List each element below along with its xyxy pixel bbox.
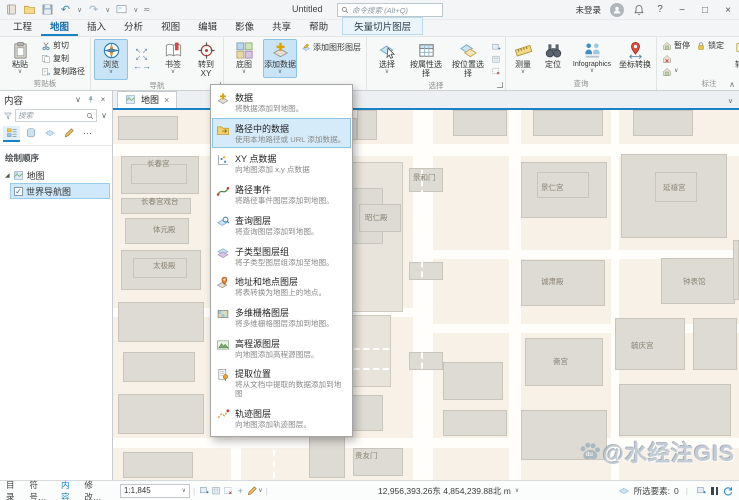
open-project-icon[interactable]	[23, 3, 36, 16]
panel-tab-strip: 目录符号…内容修改…	[0, 479, 112, 500]
undo-chevron-icon[interactable]: ∨	[77, 6, 82, 14]
add-graphics-layer-button[interactable]: 添加图形图层	[299, 41, 363, 53]
map-building	[693, 318, 737, 370]
menu-item[interactable]: 数据 将数据添加到地图。	[212, 87, 351, 118]
map-place-label: 长春宫	[147, 158, 170, 169]
menu-item-icon	[216, 123, 230, 137]
group-label-navigate: 导航	[91, 80, 223, 91]
menu-item-label: 提取位置	[235, 367, 347, 380]
lock-labeling-button[interactable]: 锁定	[694, 40, 726, 52]
group-label-clipboard: 剪贴板	[0, 78, 90, 90]
menu-item[interactable]: 提取位置 将从文档中提取的数据添加到地图	[212, 363, 351, 402]
pan-diagonal-icons[interactable]: ↖↗	[135, 48, 149, 55]
tree-node-map[interactable]: ◢ 地图	[0, 168, 112, 183]
map-place-label: 体元殿	[153, 224, 176, 235]
copy-path-button[interactable]: 复制路径	[39, 66, 87, 78]
map-building	[123, 452, 193, 478]
list-by-selection-tool[interactable]	[41, 126, 58, 142]
map-place-label: 诚肃殿	[541, 276, 564, 287]
clear-selection-icon[interactable]	[490, 66, 502, 77]
search-options-chevron-icon[interactable]: ∨	[99, 111, 109, 121]
paste-button[interactable]: 粘贴∨	[3, 39, 37, 78]
locate-icon	[544, 41, 563, 60]
pause-drawing-icon[interactable]	[711, 487, 718, 495]
copy-button[interactable]: 复制	[39, 53, 87, 65]
explore-button[interactable]: 浏览∨	[94, 39, 128, 80]
menu-item[interactable]: 地址和地点图层 将表转换为地图上的地点。	[212, 271, 351, 302]
menu-item-description: 向地图添加 x,y 点数据	[235, 166, 310, 175]
coordinate-conversion-icon	[626, 41, 645, 60]
map-building	[118, 302, 204, 342]
map-dashed-path	[273, 450, 275, 478]
panel-tab[interactable]: 符号…	[26, 479, 57, 500]
new-bookmark-icon[interactable]	[198, 485, 210, 497]
paw-logo-icon: du	[577, 439, 603, 465]
map-building	[443, 362, 503, 400]
ribbon-tab[interactable]: 地图	[41, 17, 78, 36]
minimize-button[interactable]: −	[675, 5, 689, 16]
map-dashed-path	[421, 170, 423, 470]
menu-item[interactable]: 多维栅格图层 将多维栅格图层添加到地图。	[212, 302, 351, 333]
menu-item-label: 路径中的数据	[235, 122, 345, 135]
menu-item-label: 路径事件	[235, 183, 334, 196]
pencil-icon	[63, 127, 75, 139]
crosshair-icon[interactable]: +	[234, 485, 246, 497]
pause-house-icon	[662, 41, 672, 51]
menu-item-icon	[216, 307, 230, 321]
contents-panel: 内容 ∨ × 搜索 ∨ ⋯ 绘制顺序 ◢ 地图 ✓	[0, 91, 113, 480]
map-building	[733, 240, 739, 300]
basemap-button[interactable]: 底图∨	[227, 39, 261, 78]
map-place-label: 毓庆宫	[631, 340, 654, 351]
map-place-label: 太极殿	[153, 260, 176, 271]
map-road	[611, 110, 619, 480]
map-place-label: 贵友门	[355, 450, 378, 461]
map-building	[123, 352, 195, 382]
menu-item-label: 地址和地点图层	[235, 275, 326, 288]
labeling-more-button[interactable]: ∨	[660, 66, 726, 78]
ribbon-group-clipboard: 粘贴∨ 剪切 复制 复制路径 剪贴板	[0, 37, 91, 90]
select-button[interactable]: 选择∨	[370, 39, 404, 80]
map-building	[309, 430, 345, 478]
menu-item-icon	[216, 338, 230, 352]
contents-search-placeholder: 搜索	[18, 110, 33, 121]
menu-item-description: 将从文档中提取的数据添加到地图	[235, 381, 347, 398]
watermark-text: @水经注GIS	[603, 436, 735, 468]
menu-item-icon	[216, 92, 230, 106]
refresh-icon[interactable]	[722, 485, 734, 497]
house-icon	[662, 67, 672, 77]
cut-icon	[41, 41, 51, 51]
prev-next-extent-icons[interactable]: ←→	[133, 62, 151, 71]
menu-item-label: 轨迹图层	[235, 407, 311, 420]
panel-close-icon[interactable]: ×	[98, 95, 108, 105]
copy-icon	[41, 54, 51, 64]
ribbon: 粘贴∨ 剪切 复制 复制路径 剪贴板 浏览∨ ↖↗ ↙↘ ←→ 书签∨	[0, 37, 739, 91]
sign-in-status[interactable]: 未登录	[575, 4, 601, 16]
map-road	[413, 110, 433, 480]
house-x-icon	[662, 54, 672, 64]
panel-chevron-icon[interactable]: ∨	[73, 95, 83, 105]
copy-path-icon	[41, 67, 51, 77]
menu-item-label: XY 点数据	[235, 152, 310, 165]
view-sync-icon[interactable]	[695, 485, 707, 497]
menu-item-icon	[216, 215, 230, 229]
map-scale-value: 1:1,845	[124, 486, 151, 495]
filter-funnel-icon[interactable]	[3, 111, 13, 121]
map-road	[509, 110, 521, 480]
map-building	[533, 110, 603, 136]
expander-icon[interactable]: ◢	[5, 172, 10, 179]
redo-icon[interactable]: ↷	[87, 3, 100, 16]
convert-labels-icon	[734, 41, 739, 60]
map-tab-bar: 地图 × ∨	[113, 91, 739, 110]
data-source-icon	[25, 127, 37, 139]
map-place-label: 长春宫戏台	[141, 196, 179, 207]
select-tool-icon[interactable]	[222, 485, 234, 497]
infographics-button[interactable]: Infographics∨	[569, 39, 615, 78]
menu-item[interactable]: 查询图层 将查询图层添加到地图。	[212, 210, 351, 241]
list-by-editing-tool[interactable]	[60, 126, 77, 142]
menu-item-description: 使用本地路径或 URL 添加数据。	[235, 136, 345, 145]
ribbon-tab[interactable]: 视图	[152, 17, 189, 36]
menu-item-description: 向地图添加轨迹图层。	[235, 421, 311, 430]
layer-row-world-navigation[interactable]: ✓ 世界导航图	[10, 183, 110, 199]
search-icon	[341, 6, 349, 14]
select-by-location-button[interactable]: 按位置选择	[448, 39, 488, 80]
map-building	[619, 384, 731, 436]
selection-option-icon[interactable]	[490, 42, 502, 53]
menu-item-label: 查询图层	[235, 214, 319, 227]
ribbon-group-layer: 底图∨ 添加数据∨ 添加图形图层	[224, 37, 367, 90]
list-by-data-source-tool[interactable]	[22, 126, 39, 142]
menu-item-description: 将多维栅格图层添加到地图。	[235, 320, 334, 329]
search-icon	[86, 112, 94, 120]
menu-item-description: 将子类型图层组添加至地图。	[235, 259, 334, 268]
help-icon[interactable]: ?	[654, 4, 666, 16]
select-icon	[378, 41, 397, 60]
add-graphics-layer-icon	[301, 42, 311, 52]
cut-button[interactable]: 剪切	[39, 40, 87, 52]
menu-item-icon	[216, 246, 230, 260]
ribbon-tab[interactable]: 分析	[115, 17, 152, 36]
map-place-label: 昭仁殿	[365, 212, 388, 223]
menu-item-icon	[216, 153, 230, 167]
save-icon[interactable]	[41, 3, 54, 16]
map-building	[409, 352, 443, 370]
map-road	[413, 324, 739, 333]
menu-item-label: 多维栅格图层	[235, 306, 334, 319]
locate-button[interactable]: 定位	[539, 39, 567, 78]
ribbon-group-navigate: 浏览∨ ↖↗ ↙↘ ←→ 书签∨ 转到XY 导航	[91, 37, 224, 90]
contents-panel-title: 内容	[4, 93, 23, 107]
undo-icon[interactable]: ↶	[59, 3, 72, 16]
menu-item-icon	[216, 184, 230, 198]
list-by-drawing-order-tool[interactable]	[3, 126, 20, 142]
goto-xy-icon	[197, 41, 216, 60]
select-by-attributes-button[interactable]: 按属性选择	[406, 39, 446, 80]
bookmarks-button[interactable]: 书签∨	[156, 39, 190, 80]
coordinate-readout[interactable]: 12,956,393.26东 4,854,239.88北 m ∨	[378, 485, 519, 497]
measure-icon	[514, 41, 533, 60]
close-tab-icon[interactable]: ×	[164, 95, 169, 105]
labeling-option-button[interactable]	[660, 53, 726, 65]
map-canvas[interactable]: 长春宫长春宫戏台体元殿太极殿交泰殿乾清宫昭仁殿景和门景仁宫延禧宫诚肃殿钟表馆斋宫…	[113, 110, 739, 480]
edit-tool-icon[interactable]	[246, 485, 258, 497]
status-bar: 目录符号…内容修改… 1:1,845 ∨ | + ∨ | 12,956,393.…	[0, 480, 739, 500]
map-building	[443, 410, 507, 436]
map-node-icon	[13, 170, 24, 181]
map-scale-select[interactable]: 1:1,845 ∨	[120, 484, 190, 498]
menu-item-icon	[216, 368, 230, 382]
basemap-icon	[235, 41, 254, 60]
map-building	[118, 394, 204, 434]
selection-map-icon	[44, 127, 56, 139]
menu-item-label: 子类型图层组	[235, 245, 334, 258]
paste-icon	[11, 41, 30, 60]
selected-features-count: 0	[674, 486, 679, 496]
pause-labeling-button[interactable]: 暂停	[660, 40, 692, 52]
account-avatar[interactable]	[610, 3, 624, 17]
ribbon-tab[interactable]: 插入	[78, 17, 115, 36]
map-view-tab[interactable]: 地图 ×	[117, 91, 177, 108]
close-button[interactable]: ×	[721, 5, 735, 16]
coordinate-conversion-button[interactable]: 坐标转换	[617, 39, 653, 78]
menu-item-label: 数据	[235, 91, 303, 104]
collapse-ribbon-icon[interactable]: ∧	[729, 80, 735, 89]
ribbon-tab-row: 工程地图插入分析视图编辑影像共享帮助 矢量切片图层	[0, 20, 739, 37]
ribbon-group-inquiry: 测量∨ 定位 Infographics∨ 坐标转换 查询	[506, 37, 657, 90]
tools-chevron-icon[interactable]: ∨	[258, 487, 262, 494]
person-icon	[612, 5, 622, 15]
menu-item-label: 高程源图层	[235, 337, 319, 350]
measure-button[interactable]: 测量∨	[509, 39, 537, 78]
scale-chevron-icon: ∨	[182, 487, 186, 494]
selection-dialog-launcher[interactable]	[497, 82, 503, 88]
layer-name-label: 世界导航图	[26, 185, 71, 198]
menu-item[interactable]: 路径事件 将路径事件图层添加到地图。	[212, 179, 351, 210]
map-building	[118, 116, 178, 140]
pan-arrows-cluster[interactable]: ↖↗ ↙↘ ←→	[130, 39, 154, 80]
grid-icon[interactable]	[210, 485, 222, 497]
contents-search-input[interactable]: 搜索	[15, 109, 97, 122]
menu-item[interactable]: 高程源图层 向地图添加高程源图层。	[212, 333, 351, 364]
command-search-input[interactable]: 命令搜索 (Alt+Q)	[337, 3, 443, 17]
select-by-attributes-icon	[417, 41, 436, 60]
menu-item[interactable]: 路径中的数据 使用本地路径或 URL 添加数据。	[212, 118, 351, 149]
add-data-dropdown-menu: 数据 将数据添加到地图。 路径中的数据 使用本地路径或 URL 添加数据。 XY…	[210, 84, 353, 437]
tab-list-chevron-icon[interactable]: ∨	[728, 97, 733, 105]
selection-option-icon[interactable]	[490, 54, 502, 65]
infographics-icon	[583, 41, 602, 60]
menu-item[interactable]: 子类型图层组 将子类型图层组添加至地图。	[212, 241, 351, 272]
group-label-labeling: 标注	[657, 78, 739, 90]
map-place-label: 斋宫	[553, 356, 568, 367]
map-place-label: 钟表馆	[683, 276, 706, 287]
explore-icon	[102, 41, 121, 60]
map-frame-icon[interactable]	[115, 3, 128, 16]
drawing-order-header: 绘制顺序	[0, 146, 112, 168]
ribbon-tab[interactable]: 编辑	[189, 17, 226, 36]
map-place-label: 延禧宫	[663, 182, 686, 193]
notifications-bell-icon[interactable]	[633, 4, 645, 16]
layer-checkbox[interactable]: ✓	[14, 187, 23, 196]
lock-icon	[696, 41, 706, 51]
maximize-button[interactable]: □	[698, 5, 712, 16]
map-place-label: 景和门	[413, 172, 436, 183]
map-place-label: 景仁宫	[541, 182, 564, 193]
add-data-icon	[271, 41, 290, 60]
panel-tab[interactable]: 内容	[58, 479, 80, 500]
menu-item-description: 将数据添加到地图。	[235, 105, 303, 114]
group-label-inquiry: 查询	[506, 78, 656, 90]
window-title: Untitled	[292, 4, 323, 14]
more-tools[interactable]: ⋯	[79, 126, 96, 142]
convert-labels-button[interactable]: 转换∨	[728, 39, 739, 78]
map-building	[453, 110, 507, 136]
panel-tab[interactable]: 修改…	[81, 479, 112, 500]
redo-chevron-icon[interactable]: ∨	[105, 6, 110, 14]
select-by-location-icon	[459, 41, 478, 60]
add-data-button[interactable]: 添加数据∨	[263, 39, 297, 78]
units-chevron-icon: ∨	[515, 487, 519, 494]
menu-item[interactable]: 轨迹图层 向地图添加轨迹图层。	[212, 403, 351, 434]
qat-customize-icon[interactable]: ≂	[143, 5, 150, 14]
menu-item-description: 将查询图层添加到地图。	[235, 228, 319, 237]
bookmarks-icon	[164, 41, 183, 60]
menu-item-description: 将表转换为地图上的地点。	[235, 289, 326, 298]
ribbon-tab[interactable]: 共享	[263, 17, 300, 36]
menu-item-description: 向地图添加高程源图层。	[235, 351, 319, 360]
pin-icon[interactable]	[86, 95, 95, 104]
map-building	[409, 262, 443, 280]
selected-features-label: 所选要素:	[634, 485, 670, 497]
ribbon-group-selection: 选择∨ 按属性选择 按位置选择 选择	[367, 37, 506, 90]
menu-item-description: 将路径事件图层添加到地图。	[235, 197, 334, 206]
save-project-icon[interactable]	[5, 3, 18, 16]
menu-item-icon	[216, 276, 230, 290]
frame-chevron-icon[interactable]: ∨	[133, 6, 138, 14]
goto-xy-button[interactable]: 转到XY	[192, 39, 220, 80]
contextual-tab-vector-tile-layer[interactable]: 矢量切片图层	[342, 17, 423, 35]
map-building	[357, 110, 377, 140]
command-search-placeholder: 命令搜索 (Alt+Q)	[352, 5, 408, 16]
menu-item[interactable]: XY 点数据 向地图添加 x,y 点数据	[212, 148, 351, 179]
selected-features-icon	[618, 485, 630, 497]
drawing-order-icon	[6, 127, 18, 139]
ribbon-tab[interactable]: 帮助	[300, 17, 337, 36]
panel-tab[interactable]: 目录	[3, 479, 25, 500]
ribbon-group-labeling: 暂停 锁定 ∨ 转换∨ 标注	[657, 37, 739, 90]
watermark: du @水经注GIS	[577, 436, 735, 468]
ribbon-tab[interactable]: 工程	[4, 17, 41, 36]
map-tab-icon	[125, 94, 136, 105]
ribbon-tab[interactable]: 影像	[226, 17, 263, 36]
map-building	[633, 110, 693, 136]
menu-item-icon	[216, 408, 230, 422]
group-label-selection: 选择	[367, 80, 505, 91]
map-view: 地图 × ∨ 长春宫长春宫戏台体元殿太极殿交泰殿乾清宫昭仁殿景和门景仁宫延禧宫诚…	[113, 91, 739, 480]
